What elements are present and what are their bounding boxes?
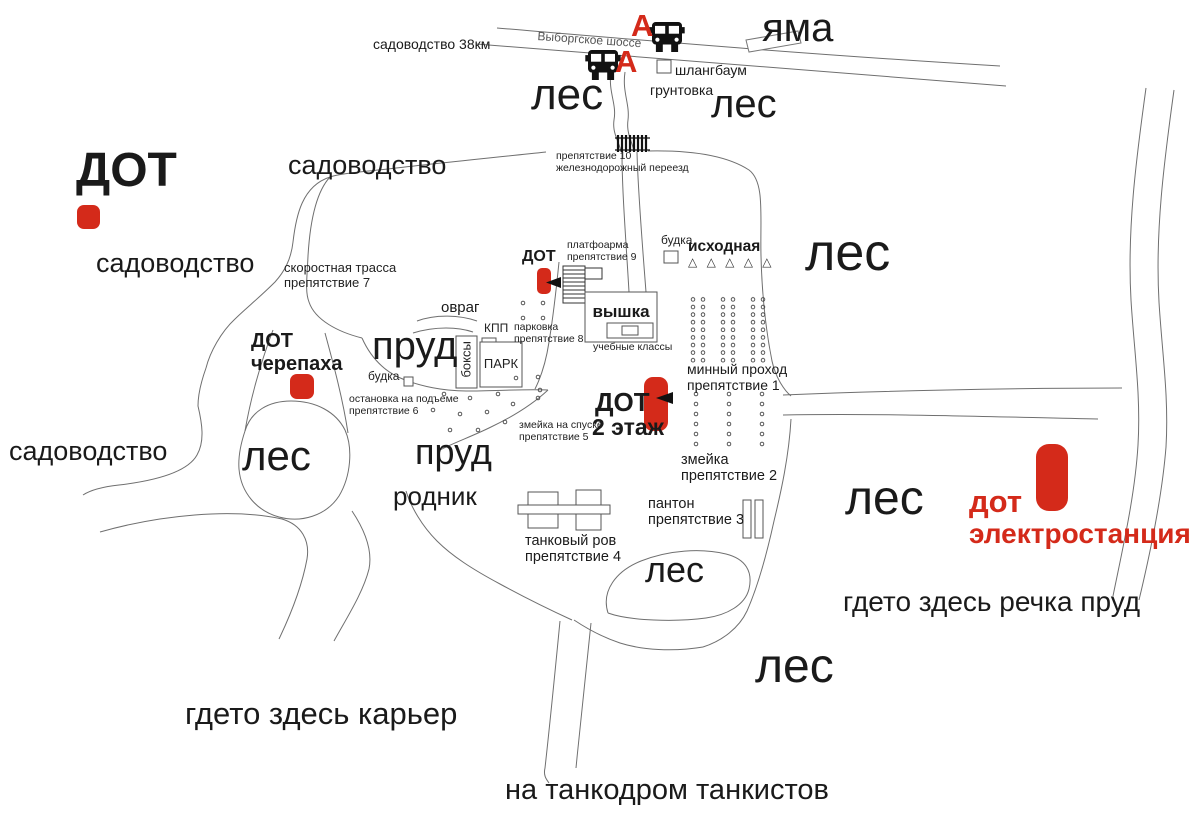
start-line-triangle-icons: △ △ △ △ △	[688, 256, 774, 270]
booth-2	[404, 377, 413, 386]
pontoon-right	[755, 500, 763, 538]
label-quarry-note: гдето здесь карьер	[185, 696, 457, 731]
label-river-pond-note: гдето здесь речка пруд	[843, 586, 1140, 618]
label-dirt-road: грунтовка	[650, 83, 713, 99]
label-pillbox-center: ДОТ	[522, 248, 556, 266]
label-classrooms: учебные классы	[593, 342, 672, 354]
label-pillbox-turtle: ДОТ черепаха	[251, 330, 343, 375]
label-obstacle-3: пантон препятствие 3	[648, 496, 744, 529]
bus-stop-letter-2: А	[615, 44, 637, 79]
label-forest-oval: лес	[242, 432, 311, 479]
bus-icon-1	[649, 22, 684, 52]
label-garage-boxes: боксы	[460, 333, 475, 385]
label-forest-topleft: лес	[531, 70, 603, 120]
label-forest-bottom: лес	[755, 640, 834, 694]
minefield-dots-upper	[684, 295, 766, 363]
booth-1	[664, 251, 678, 263]
label-obstacle-4: танковый ров препятствие 4	[525, 533, 621, 566]
label-gardening-bottomleft: садоводство	[9, 436, 167, 467]
label-tankodrom-note: на танкодром танкистов	[505, 774, 829, 807]
label-obstacle-9: платфоарма препятствие 9	[567, 240, 637, 264]
label-pit: яма	[762, 6, 833, 51]
pillbox-marker-turtle	[290, 374, 314, 399]
label-barrier: шлангбаум	[675, 63, 747, 79]
label-obstacle-10: препятствие 10 железнодорожный переезд	[556, 151, 689, 175]
label-gardening-top: садоводство	[288, 150, 446, 181]
label-pillbox-2floor-sub: 2 этаж	[592, 414, 664, 440]
pontoon-left	[743, 500, 751, 538]
classroom-inner	[622, 326, 638, 335]
label-obstacle-6: остановка на подъеме препятствие 6	[349, 394, 459, 418]
label-pillbox-topleft: ДОТ	[76, 144, 177, 198]
label-forest-right: лес	[805, 224, 890, 283]
label-pond-1: пруд	[372, 324, 457, 369]
label-obstacle-1: минный проход препятствие 1	[687, 362, 787, 394]
label-ravine: овраг	[441, 300, 479, 317]
label-pillbox-power-2: электростанция	[969, 518, 1191, 550]
label-forest-south: лес	[645, 550, 704, 591]
tank-ditch-bar	[518, 505, 610, 514]
bus-stop-letter-1: А	[631, 8, 653, 43]
label-spring: родник	[393, 482, 477, 511]
barrier-booth	[657, 60, 671, 73]
pillbox-marker-center	[537, 268, 551, 294]
label-obstacle-2: змейка препятствие 2	[681, 452, 777, 485]
label-gardening-38km: садоводство 38км	[373, 37, 490, 53]
pillbox-marker-power	[1036, 444, 1068, 511]
label-obstacle-5: змейка на спуске препятствие 5	[519, 420, 603, 444]
label-forest-midright: лес	[845, 472, 924, 526]
label-start-line: исходная	[688, 238, 760, 256]
tankodrom-map: садоводство 38км Выборгское шоссе А А шл…	[0, 0, 1200, 834]
label-obstacle-7: скоростная трасса препятствие 7	[284, 261, 396, 290]
pillbox-marker-topleft	[77, 205, 100, 229]
label-pillbox-power-1: дот	[969, 484, 1022, 519]
label-booth-2: будка	[368, 370, 399, 384]
label-watchtower: вышка	[585, 302, 657, 321]
label-pillbox-2floor: ДОТ	[595, 388, 650, 417]
label-checkpoint: КПП	[484, 322, 508, 336]
label-gardening-left: садоводство	[96, 248, 254, 279]
label-obstacle-8: парковка препятствие 8	[514, 322, 584, 346]
label-pond-2: пруд	[415, 432, 492, 473]
label-forest-topright: лес	[711, 82, 777, 127]
label-park: ПАРК	[480, 357, 522, 372]
minefield-dots-lower	[686, 391, 766, 451]
